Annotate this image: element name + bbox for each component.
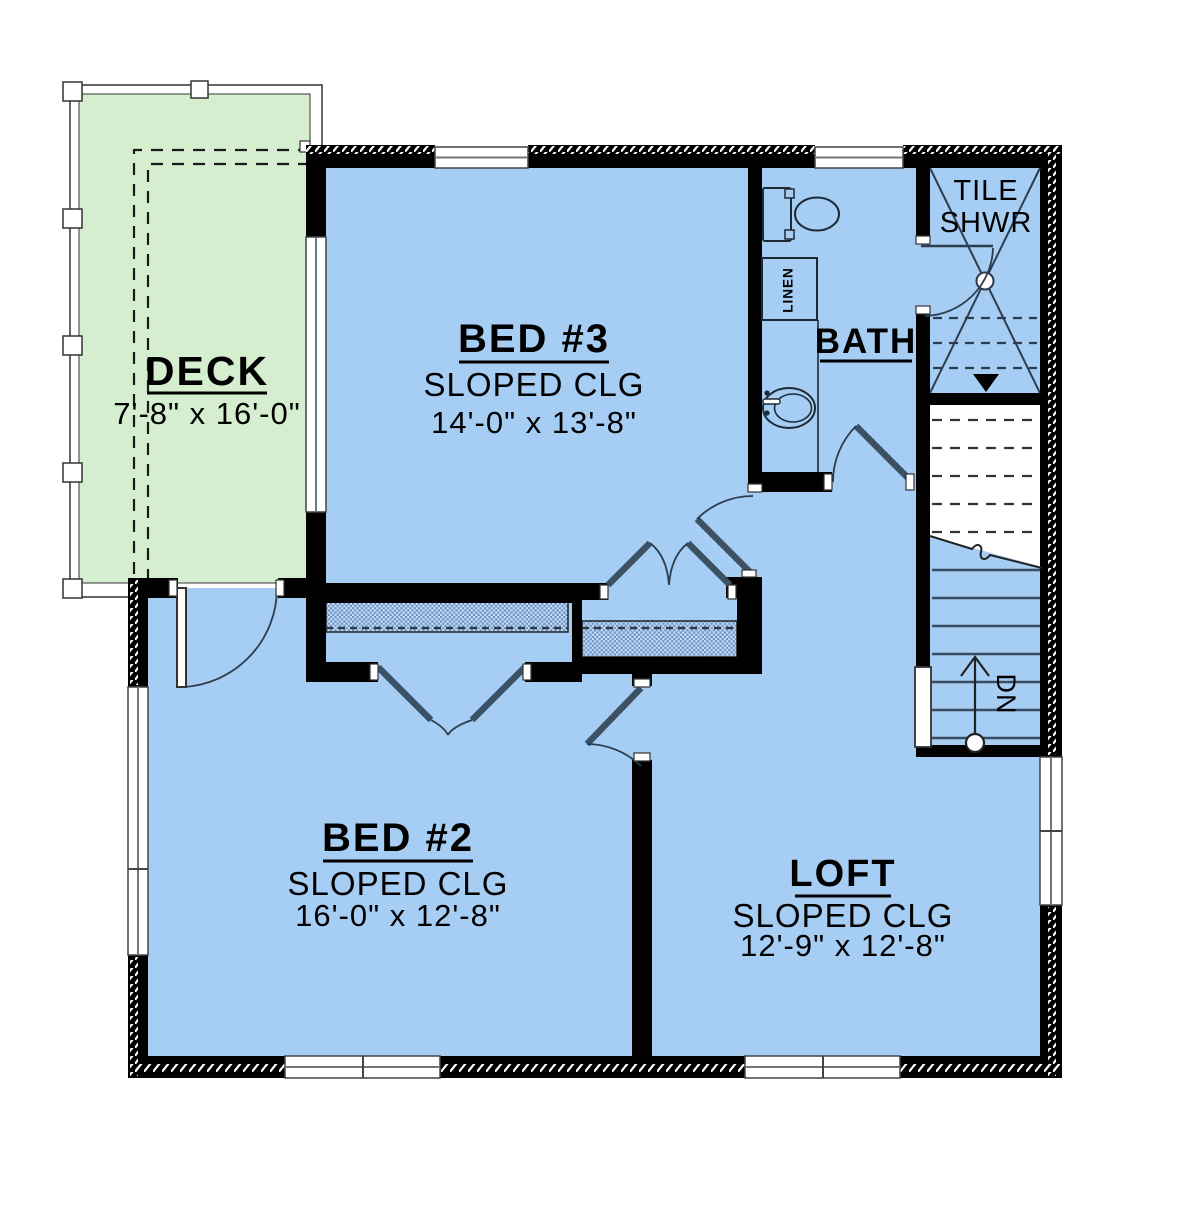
label-tile-shower: TILE SHWR (940, 175, 1033, 239)
faucet-icon (763, 399, 780, 404)
shower-name-line2: SHWR (940, 207, 1033, 239)
label-bath: BATH (815, 322, 918, 361)
bed3-name: BED #3 (458, 317, 610, 361)
bed2-dims: 16'-0" x 12'-8" (295, 898, 501, 933)
floor-plan-drawing: DN LINEN (0, 0, 1200, 1220)
window-bed2-bottom (285, 1056, 440, 1078)
deck-area (63, 81, 322, 598)
bed2-name: BED #2 (322, 816, 474, 860)
loft-name: LOFT (789, 853, 896, 895)
window-bed3-deck (306, 237, 326, 512)
floor-plan-page: DN LINEN (0, 0, 1200, 1220)
linen-closet: LINEN (762, 258, 817, 320)
loft-dims: 12'-9" x 12'-8" (740, 928, 946, 963)
bed3-dims: 14'-0" x 13'-8" (431, 405, 637, 440)
shower-name-line1: TILE (953, 175, 1018, 207)
stair-arrow-origin (966, 734, 984, 752)
stair-half-wall (915, 667, 931, 747)
deck-dims: 7'-8" x 16'-0" (113, 396, 300, 431)
hall-closet-shelf (582, 621, 737, 657)
window-bath-top (815, 147, 903, 168)
window-bed3-top (435, 147, 528, 168)
sink (763, 388, 815, 428)
window-loft-right (1040, 757, 1062, 905)
window-loft-bottom (745, 1056, 900, 1078)
stairs-dn-label: DN (991, 674, 1021, 715)
deck-name: DECK (145, 348, 269, 394)
bed3-ceiling: SLOPED CLG (424, 366, 645, 403)
linen-label: LINEN (781, 267, 796, 313)
bed2-ceiling: SLOPED CLG (288, 865, 509, 902)
window-bed2-left (128, 687, 148, 955)
deck-floor (79, 94, 310, 583)
bath-name: BATH (815, 322, 918, 361)
